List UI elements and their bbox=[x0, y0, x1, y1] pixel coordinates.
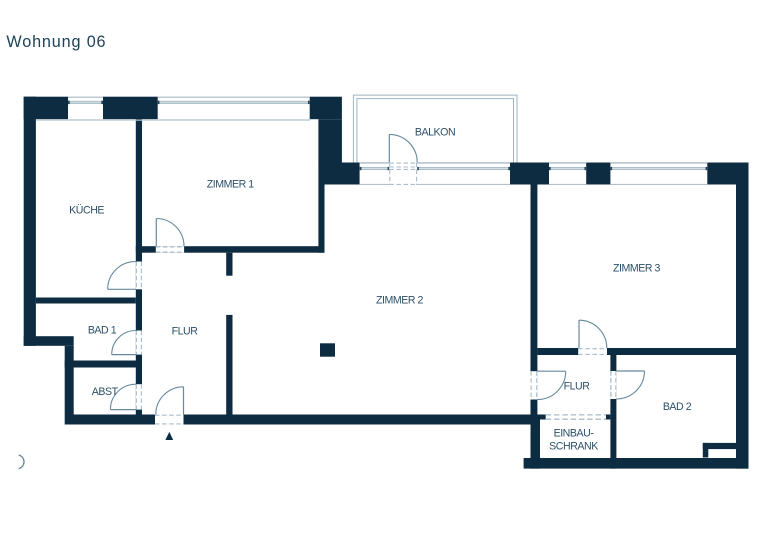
svg-text:SCHRANK: SCHRANK bbox=[549, 441, 598, 453]
svg-text:ZIMMER 1: ZIMMER 1 bbox=[207, 179, 255, 191]
svg-text:FLUR: FLUR bbox=[172, 326, 199, 338]
svg-text:ABST: ABST bbox=[92, 386, 119, 398]
svg-text:ZIMMER 3: ZIMMER 3 bbox=[613, 263, 661, 275]
svg-text:BAD 2: BAD 2 bbox=[663, 401, 692, 413]
svg-text:Wohnung 06: Wohnung 06 bbox=[6, 33, 106, 51]
svg-text:ZIMMER 2: ZIMMER 2 bbox=[376, 295, 424, 307]
svg-text:BAD 1: BAD 1 bbox=[88, 324, 117, 336]
svg-text:KÜCHE: KÜCHE bbox=[69, 205, 104, 217]
svg-text:EINBAU-: EINBAU- bbox=[554, 427, 595, 439]
svg-text:FLUR: FLUR bbox=[564, 380, 591, 392]
svg-text:BALKON: BALKON bbox=[415, 126, 455, 138]
